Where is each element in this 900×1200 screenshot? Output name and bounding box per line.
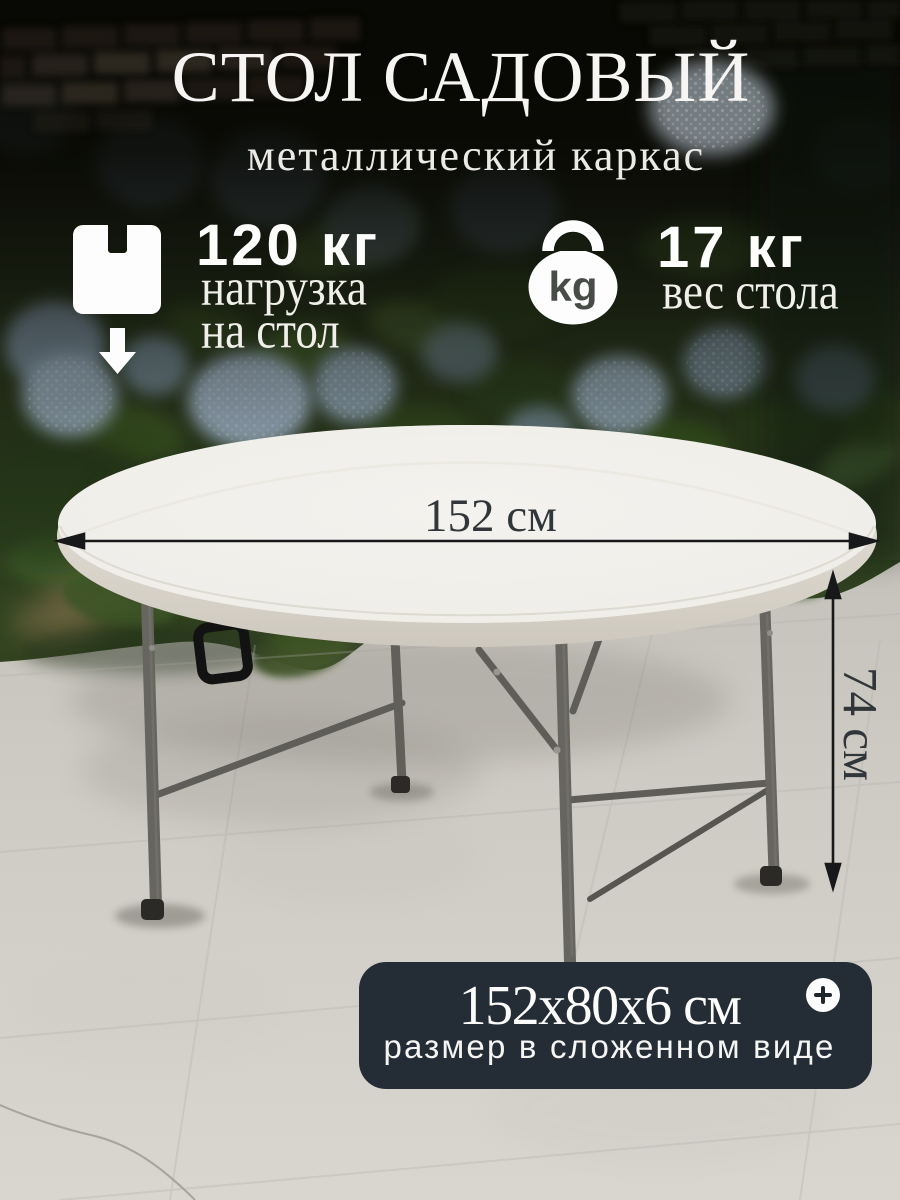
svg-text:kg: kg	[548, 263, 597, 310]
